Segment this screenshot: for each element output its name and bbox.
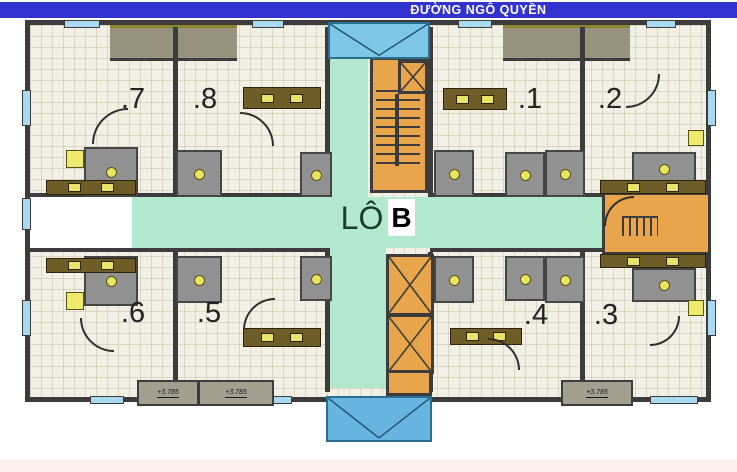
unit-label-4: .4 <box>506 297 566 333</box>
entrance-canopy-top <box>328 22 430 59</box>
unit-label-1: .1 <box>500 81 560 117</box>
closet-block <box>66 292 84 310</box>
balcony-level-mark: +3.785 <box>198 380 274 406</box>
unit-label-5: .5 <box>179 295 239 331</box>
bathroom-block <box>176 150 222 197</box>
stove-icon <box>481 95 494 104</box>
unit-label-2: .2 <box>580 81 640 117</box>
balcony-level-mark: +3.785 <box>137 380 199 406</box>
window-strip <box>64 20 100 28</box>
stove-icon <box>290 333 303 342</box>
sink-icon <box>261 94 274 103</box>
kitchen-counter <box>46 180 136 195</box>
loggia-top-right <box>503 25 630 61</box>
kitchen-counter <box>243 87 321 109</box>
window-strip <box>22 198 31 230</box>
window-strip <box>458 20 492 28</box>
sink-icon <box>466 332 479 341</box>
stove-icon <box>666 183 679 192</box>
stove-icon <box>101 261 114 270</box>
corridor-vertical-bottom <box>330 248 386 388</box>
level-mark-label: +3.785 <box>157 389 179 398</box>
unit-label-7: .7 <box>103 81 163 117</box>
bathroom-block <box>300 256 332 301</box>
kitchen-counter <box>46 258 136 273</box>
window-strip <box>22 300 31 336</box>
balcony-level-mark: +3.785 <box>561 380 633 406</box>
street-banner: ĐƯỜNG NGÔ QUYỀN <box>0 2 737 18</box>
block-label: LÔ <box>336 197 388 239</box>
bathroom-block <box>545 150 585 197</box>
page-footer-strip <box>0 459 737 472</box>
window-strip <box>707 90 716 126</box>
sink-icon <box>261 333 274 342</box>
bathroom-block <box>545 256 585 303</box>
stove-icon <box>666 257 679 266</box>
window-strip <box>252 20 284 28</box>
bathroom-block <box>632 268 696 302</box>
level-mark-label: +3.785 <box>225 389 247 398</box>
sink-icon <box>456 95 469 104</box>
kitchen-counter <box>243 328 321 347</box>
sink-icon <box>68 261 81 270</box>
bathroom-block <box>300 152 332 197</box>
elevator-icon <box>386 314 434 374</box>
closet-block <box>66 150 84 168</box>
bathroom-block <box>434 150 474 197</box>
stove-icon <box>101 183 114 192</box>
elevator-icon <box>386 254 434 316</box>
bathroom-block <box>505 152 545 197</box>
entrance-canopy-bottom <box>326 396 432 442</box>
window-strip <box>90 396 124 404</box>
bathroom-block <box>434 256 474 303</box>
kitchen-counter <box>600 254 706 268</box>
elevator-icon <box>398 60 428 94</box>
unit-label-3: .3 <box>576 297 636 333</box>
window-strip <box>22 90 31 126</box>
sink-icon <box>627 257 640 266</box>
corridor-left-white <box>30 197 132 248</box>
floor-plan-page: ĐƯỜNG NGÔ QUYỀN <box>0 0 737 472</box>
core-vestibule <box>386 370 432 396</box>
level-mark-label: +3.785 <box>586 389 608 398</box>
stair-rail <box>395 94 399 166</box>
sink-icon <box>627 183 640 192</box>
stove-icon <box>290 94 303 103</box>
sink-icon <box>68 183 81 192</box>
corridor-wall-bottom-left <box>30 248 330 252</box>
window-strip <box>707 300 716 336</box>
bathroom-block <box>505 256 545 301</box>
closet-block <box>688 130 704 146</box>
closet-block <box>688 300 704 316</box>
block-letter: B <box>388 199 415 236</box>
window-strip <box>646 20 676 28</box>
unit-label-8: .8 <box>175 81 235 117</box>
window-strip <box>650 396 698 404</box>
corridor-vertical-top <box>330 57 368 197</box>
kitchen-counter <box>443 88 507 110</box>
street-name: ĐƯỜNG NGÔ QUYỀN <box>110 2 737 18</box>
unit-label-6: .6 <box>103 295 163 331</box>
kitchen-counter <box>600 180 706 194</box>
